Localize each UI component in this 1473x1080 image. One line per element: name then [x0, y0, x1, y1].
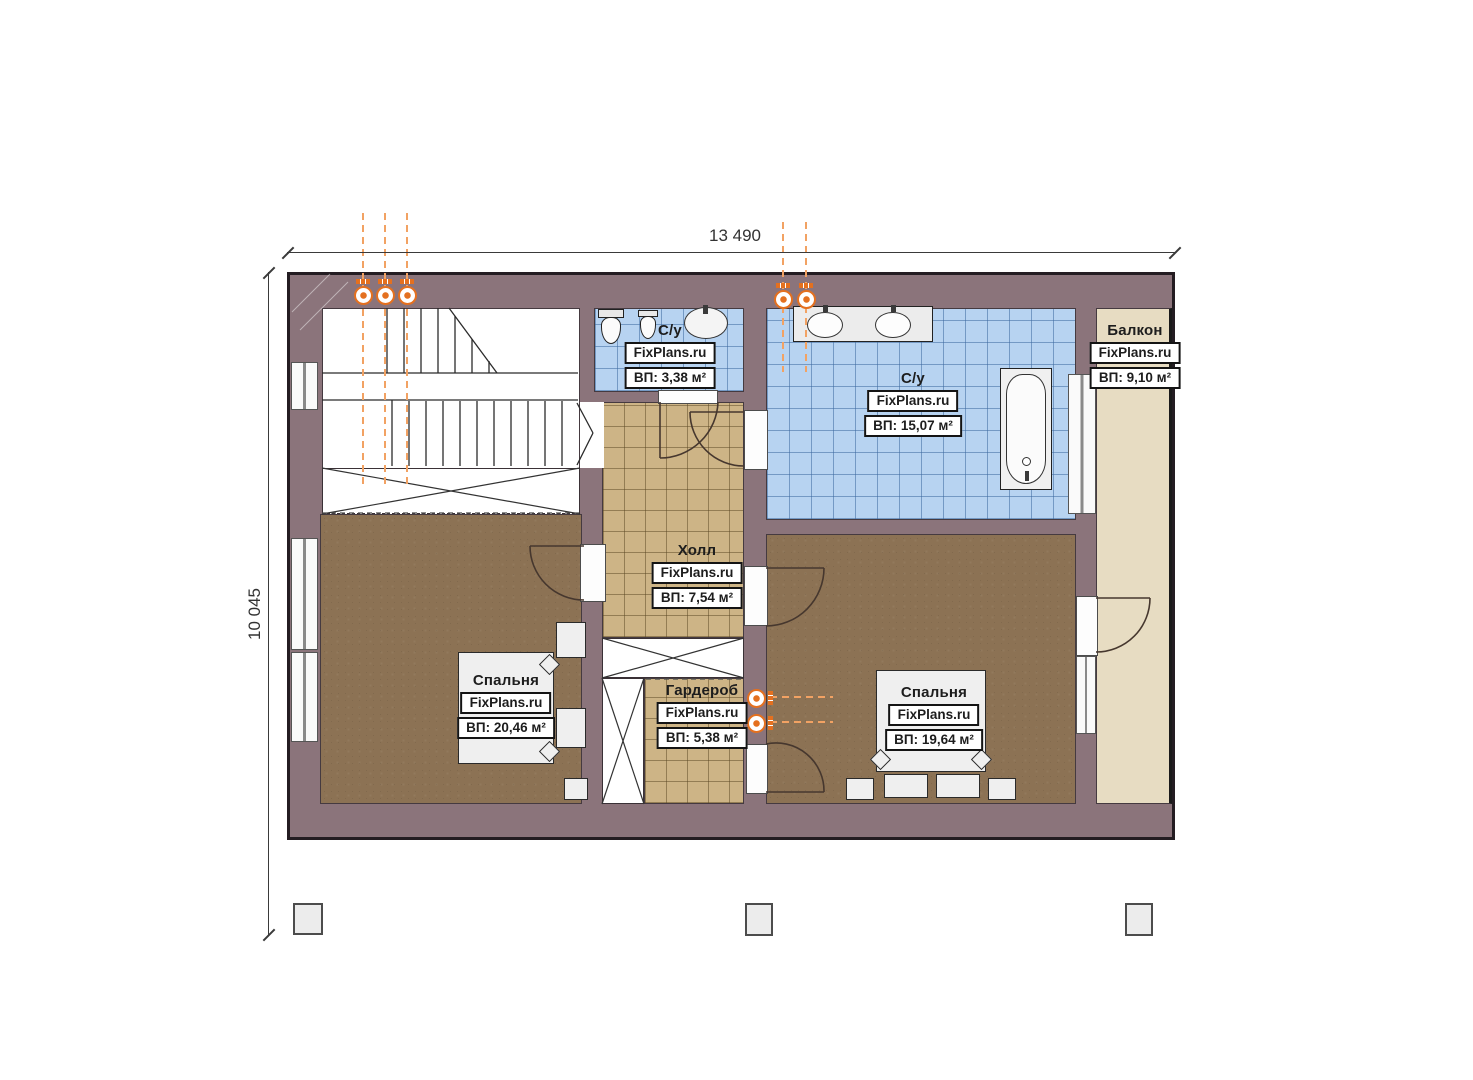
vanity-tap-right [891, 305, 896, 312]
area-box: ВП: 5,38 м² [657, 727, 747, 749]
watermark-box: FixPlans.ru [461, 692, 552, 714]
vanity-counter [793, 306, 933, 342]
area-box: ВП: 3,38 м² [625, 367, 715, 389]
bathtub-tap [1025, 471, 1029, 481]
watermark-box: FixPlans.ru [652, 562, 743, 584]
label-hall: Холл FixPlans.ru ВП: 7,54 м² [652, 542, 743, 609]
room-name: Гардероб [657, 682, 748, 699]
room-name: Балкон [1090, 322, 1181, 339]
dimension-tick [282, 247, 295, 260]
watermark-box: FixPlans.ru [868, 390, 959, 412]
room-name: С/у [625, 322, 716, 339]
window-left-bottom [291, 652, 318, 742]
label-balcony: Балкон FixPlans.ru ВП: 9,10 м² [1090, 322, 1181, 389]
column-marker [293, 903, 323, 935]
column-marker [1125, 903, 1153, 936]
room-name: Холл [652, 542, 743, 559]
window-left-middle [291, 538, 318, 650]
dimension-tick [263, 929, 276, 942]
window-bathroom-balcony [1068, 374, 1096, 514]
bathtub-icon [1000, 368, 1052, 490]
nightstand [988, 778, 1016, 800]
bed-cushion [884, 774, 928, 798]
label-small-bathroom: С/у FixPlans.ru ВП: 3,38 м² [625, 322, 716, 389]
radiator-icon [396, 279, 418, 307]
label-bedroom-left: Спальня FixPlans.ru ВП: 20,46 м² [457, 672, 555, 739]
area-box: ВП: 9,10 м² [1090, 367, 1180, 389]
stairwell [322, 308, 580, 470]
vanity-sink-right [875, 312, 911, 338]
nightstand [556, 708, 586, 748]
area-box: ВП: 15,07 м² [864, 415, 962, 437]
window-left-top [291, 362, 318, 410]
bathtub-basin [1006, 374, 1046, 484]
column-marker [745, 903, 773, 936]
door-opening-bedroom-right [744, 566, 768, 626]
area-box: ВП: 19,64 м² [885, 729, 983, 751]
label-wardrobe: Гардероб FixPlans.ru ВП: 5,38 м² [657, 682, 748, 749]
radiator-icon [745, 687, 773, 709]
width-dimension-label: 13 490 [690, 226, 780, 246]
door-opening-wardrobe [746, 744, 768, 794]
watermark-box: FixPlans.ru [1090, 342, 1181, 364]
radiator-icon [352, 279, 374, 307]
room-name: Спальня [885, 684, 983, 701]
door-opening-small-bath [658, 390, 718, 404]
height-dimension-label: 10 045 [245, 574, 265, 654]
dimension-tick [263, 267, 276, 280]
nightstand [564, 778, 588, 800]
radiator-icon [772, 283, 794, 311]
closet-under-stairs [322, 468, 580, 514]
closet-wardrobe-west [602, 678, 644, 804]
area-box: ВП: 7,54 м² [652, 587, 742, 609]
left-dimension-line [268, 272, 269, 935]
toilet-icon [598, 309, 624, 349]
watermark-box: FixPlans.ru [889, 704, 980, 726]
sink-tap [703, 305, 708, 314]
window-bedroom-balcony [1076, 656, 1096, 734]
room-name: Спальня [457, 672, 555, 689]
area-box: ВП: 20,46 м² [457, 717, 555, 739]
room-name: С/у [864, 370, 962, 387]
closet-hall-south [602, 638, 744, 678]
door-opening-bedroom-left [580, 544, 606, 602]
radiator-icon [374, 279, 396, 307]
toilet-bowl [601, 317, 621, 344]
bed-cushion [936, 774, 980, 798]
nightstand [556, 622, 586, 658]
bathtub-drain [1022, 457, 1031, 466]
dimension-tick [1169, 247, 1182, 260]
radiator-icon [795, 283, 817, 311]
stairs-hall-passage [580, 402, 604, 468]
vanity-sink-left [807, 312, 843, 338]
door-opening-big-bath [744, 410, 768, 470]
top-dimension-line [287, 252, 1175, 253]
floor-plan-canvas: 13 490 10 045 [0, 0, 1473, 1080]
watermark-box: FixPlans.ru [625, 342, 716, 364]
watermark-box: FixPlans.ru [657, 702, 748, 724]
vanity-tap-left [823, 305, 828, 312]
door-opening-balcony [1076, 596, 1098, 656]
radiator-icon [745, 712, 773, 734]
nightstand [846, 778, 874, 800]
label-bedroom-right: Спальня FixPlans.ru ВП: 19,64 м² [885, 684, 983, 751]
label-big-bathroom: С/у FixPlans.ru ВП: 15,07 м² [864, 370, 962, 437]
